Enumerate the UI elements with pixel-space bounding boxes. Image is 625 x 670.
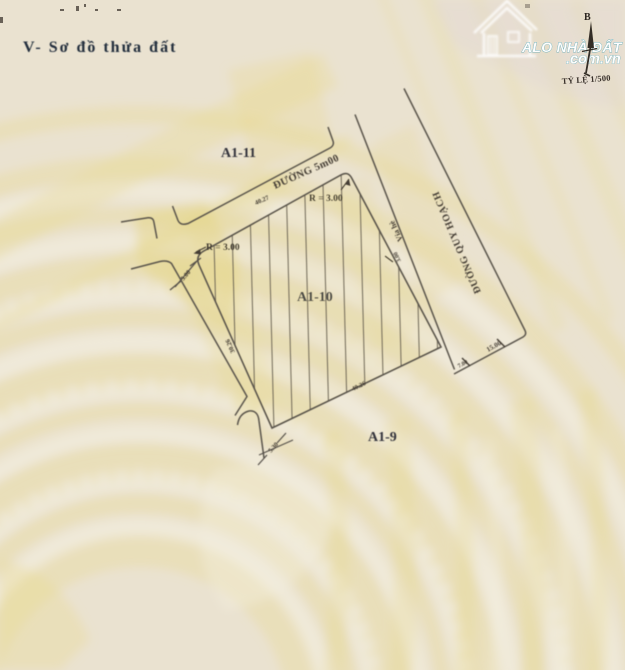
svg-text:A1-9: A1-9 bbox=[368, 430, 397, 445]
svg-text:R = 3.00: R = 3.00 bbox=[206, 243, 240, 253]
svg-text:B: B bbox=[584, 12, 591, 23]
svg-text:V- Sơ đồ thửa đất: V- Sơ đồ thửa đất bbox=[23, 39, 177, 56]
svg-text:R = 3.00: R = 3.00 bbox=[309, 194, 343, 204]
svg-text:.com.vn: .com.vn bbox=[566, 52, 621, 68]
svg-text:A1-11: A1-11 bbox=[221, 146, 256, 161]
